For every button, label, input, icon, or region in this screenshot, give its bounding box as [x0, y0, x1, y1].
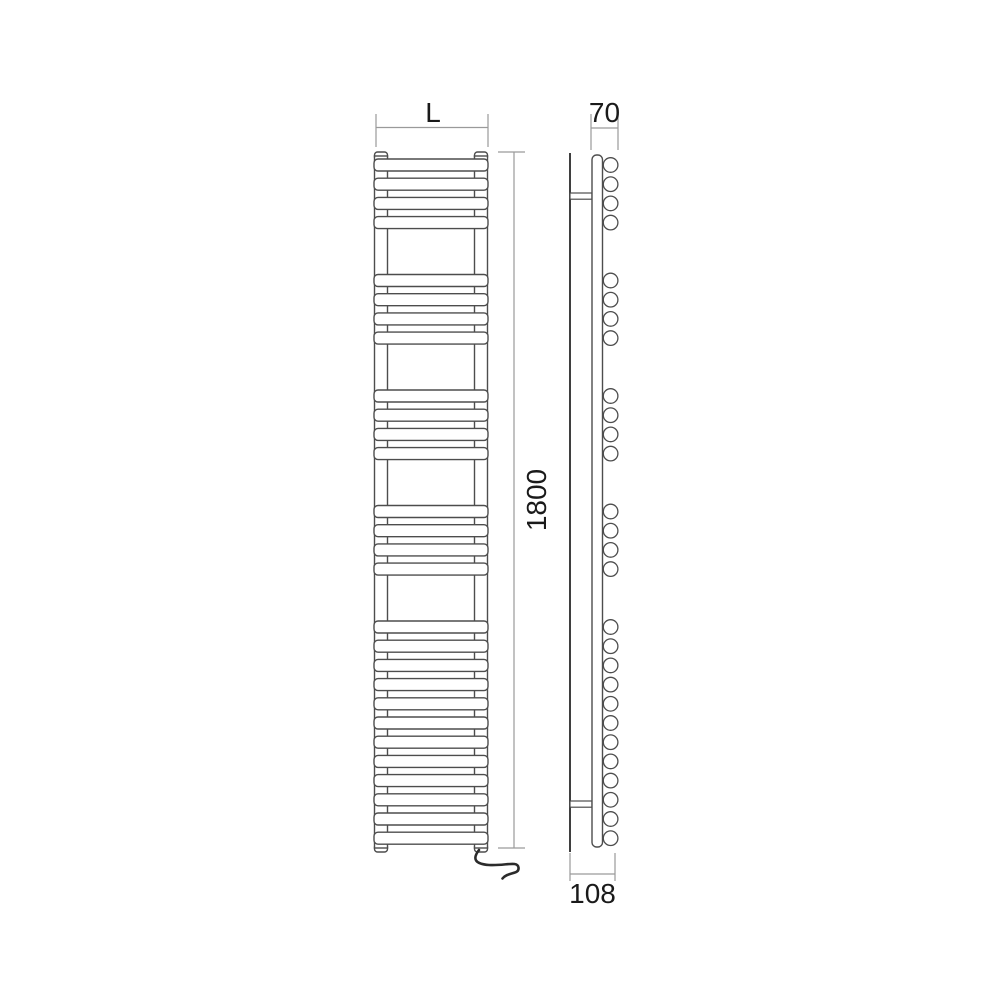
towel-bar [374, 755, 488, 767]
power-cable-icon [475, 850, 518, 879]
bar-end-circle [603, 389, 618, 404]
towel-bar [374, 659, 488, 671]
width-dimension-label: L [425, 97, 441, 128]
towel-bar [374, 390, 488, 402]
towel-bar [374, 544, 488, 556]
total-depth-dimension-label: 108 [569, 878, 616, 909]
bar-end-circle [603, 196, 618, 211]
collector-tube [592, 155, 603, 847]
towel-bar [374, 159, 488, 171]
towel-bar [374, 813, 488, 825]
bar-end-circle [603, 773, 618, 788]
bar-end-circle [603, 831, 618, 846]
bar-end-circle [603, 735, 618, 750]
bar-end-circle [603, 639, 618, 654]
towel-bar [374, 313, 488, 325]
towel-bar [374, 506, 488, 518]
wall-bracket [570, 801, 592, 807]
towel-bar [374, 563, 488, 575]
rail-depth-dimension: 70 [589, 97, 620, 150]
bar-end-circle [603, 158, 618, 173]
bar-end-circle [603, 697, 618, 712]
towel-bar [374, 621, 488, 633]
towel-bar [374, 178, 488, 190]
towel-bar [374, 832, 488, 844]
bar-end-circle [603, 523, 618, 538]
bar-end-circle [603, 312, 618, 327]
towel-bar [374, 775, 488, 787]
rail-depth-dimension-label: 70 [589, 97, 620, 128]
towel-bar [374, 217, 488, 229]
width-dimension: L [376, 97, 488, 147]
towel-bar [374, 794, 488, 806]
towel-bar [374, 332, 488, 344]
towel-bar [374, 448, 488, 460]
bar-end-circle [603, 562, 618, 577]
bar-end-circle [603, 793, 618, 808]
bar-end-circle [603, 658, 618, 673]
towel-bar [374, 275, 488, 287]
bar-end-circle [603, 543, 618, 558]
towel-bar [374, 698, 488, 710]
bar-end-circle [603, 446, 618, 461]
total-depth-dimension: 108 [569, 853, 616, 909]
bar-end-circle [603, 215, 618, 230]
towel-bar [374, 717, 488, 729]
towel-bar [374, 679, 488, 691]
front-view [374, 152, 488, 852]
towel-bar [374, 197, 488, 209]
height-dimension: 1800 [498, 152, 552, 848]
bar-end-circle [603, 716, 618, 731]
bar-end-circle [603, 331, 618, 346]
towel-bar [374, 409, 488, 421]
bar-end-circle [603, 273, 618, 288]
bar-end-circle [603, 177, 618, 192]
bar-end-circle [603, 504, 618, 519]
height-dimension-label: 1800 [521, 469, 552, 531]
towel-bar [374, 736, 488, 748]
bar-end-circle [603, 812, 618, 827]
bar-end-circle [603, 754, 618, 769]
towel-bar [374, 428, 488, 440]
bar-end-circle [603, 292, 618, 307]
wall-bracket [570, 193, 592, 199]
towel-bar [374, 525, 488, 537]
technical-drawing: L 1800 70 108 [0, 0, 1000, 1000]
side-view [570, 153, 618, 852]
bar-end-circle [603, 427, 618, 442]
bar-end-circle [603, 408, 618, 423]
bar-end-circle [603, 677, 618, 692]
towel-bar [374, 294, 488, 306]
radiator-dimension-diagram: L 1800 70 108 [0, 0, 1000, 1000]
towel-bar [374, 640, 488, 652]
bar-end-circle [603, 620, 618, 635]
